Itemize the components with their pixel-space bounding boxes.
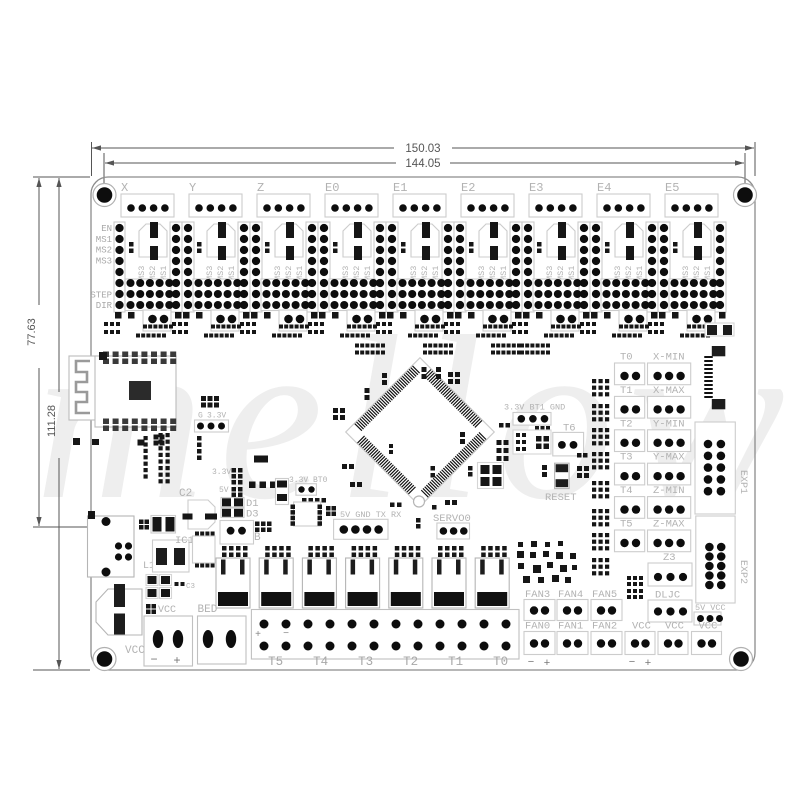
svg-text:MS2: MS2 xyxy=(96,246,112,256)
svg-text:T5: T5 xyxy=(620,519,633,531)
svg-text:5V GND TX RX: 5V GND TX RX xyxy=(340,510,401,520)
svg-text:FAN1: FAN1 xyxy=(558,621,583,633)
svg-text:C3: C3 xyxy=(186,583,196,591)
svg-text:E2: E2 xyxy=(461,181,475,195)
svg-text:Z-MIN: Z-MIN xyxy=(653,485,685,497)
svg-text:77.63: 77.63 xyxy=(26,318,38,346)
svg-text:−: − xyxy=(150,652,157,666)
svg-text:D3: D3 xyxy=(246,509,259,521)
svg-text:−: − xyxy=(283,628,289,639)
svg-text:E1: E1 xyxy=(393,181,407,195)
svg-text:E4: E4 xyxy=(597,181,611,195)
svg-text:E3: E3 xyxy=(529,181,543,195)
svg-text:EXP1: EXP1 xyxy=(737,470,748,494)
svg-text:Z3: Z3 xyxy=(663,552,676,564)
svg-text:BED: BED xyxy=(198,604,218,616)
svg-text:VCC: VCC xyxy=(699,621,718,633)
svg-text:EN: EN xyxy=(101,224,112,234)
svg-text:5V: 5V xyxy=(219,486,229,495)
svg-text:+: + xyxy=(255,629,261,640)
svg-text:RESET: RESET xyxy=(545,492,577,504)
svg-text:Y-MIN: Y-MIN xyxy=(653,418,685,430)
svg-text:3.3V BT1 GND: 3.3V BT1 GND xyxy=(504,403,565,413)
svg-text:VCC: VCC xyxy=(158,605,176,616)
svg-text:B: B xyxy=(254,532,261,544)
svg-text:+: + xyxy=(544,657,550,669)
svg-text:FAN0: FAN0 xyxy=(525,621,550,633)
svg-text:G: G xyxy=(198,412,203,421)
svg-text:T3: T3 xyxy=(620,452,633,464)
svg-text:Y-MAX: Y-MAX xyxy=(653,452,685,464)
svg-text:Z-MAX: Z-MAX xyxy=(653,519,685,531)
svg-text:T4: T4 xyxy=(313,655,328,669)
svg-text:DIR: DIR xyxy=(96,301,113,311)
svg-text:111.28: 111.28 xyxy=(46,405,58,437)
svg-text:+: + xyxy=(173,653,180,667)
svg-text:T1: T1 xyxy=(448,655,463,669)
svg-text:−: − xyxy=(629,656,635,668)
svg-text:T4: T4 xyxy=(620,485,633,497)
svg-text:VCC: VCC xyxy=(632,621,651,633)
svg-text:3.3V: 3.3V xyxy=(207,412,226,421)
svg-text:E5: E5 xyxy=(665,181,679,195)
svg-text:+: + xyxy=(645,657,651,669)
svg-text:STEP: STEP xyxy=(90,291,112,301)
svg-text:T2: T2 xyxy=(620,418,633,430)
svg-text:C2: C2 xyxy=(179,488,192,500)
svg-text:144.05: 144.05 xyxy=(405,158,440,170)
svg-text:X-MAX: X-MAX xyxy=(653,385,685,397)
svg-text:E0: E0 xyxy=(325,181,339,195)
svg-text:T0: T0 xyxy=(493,655,508,669)
svg-text:X: X xyxy=(121,181,128,195)
svg-text:−: − xyxy=(528,656,534,668)
svg-text:VCC: VCC xyxy=(125,645,145,657)
svg-text:X-MIN: X-MIN xyxy=(653,352,685,364)
svg-text:FAN2: FAN2 xyxy=(592,621,617,633)
svg-text:T0: T0 xyxy=(620,352,633,364)
svg-text:T1: T1 xyxy=(620,385,633,397)
svg-text:Y: Y xyxy=(189,181,196,195)
svg-text:T5: T5 xyxy=(268,655,283,669)
svg-text:T3: T3 xyxy=(358,655,373,669)
svg-text:EXP2: EXP2 xyxy=(737,560,748,584)
svg-text:3.3V: 3.3V xyxy=(212,468,231,477)
svg-text:VCC: VCC xyxy=(665,621,684,633)
svg-text:150.03: 150.03 xyxy=(405,143,440,155)
svg-text:Z: Z xyxy=(257,181,264,195)
svg-text:IC1: IC1 xyxy=(175,535,194,547)
svg-text:MS3: MS3 xyxy=(96,257,112,267)
svg-text:MS1: MS1 xyxy=(96,235,112,245)
svg-text:T2: T2 xyxy=(403,655,418,669)
